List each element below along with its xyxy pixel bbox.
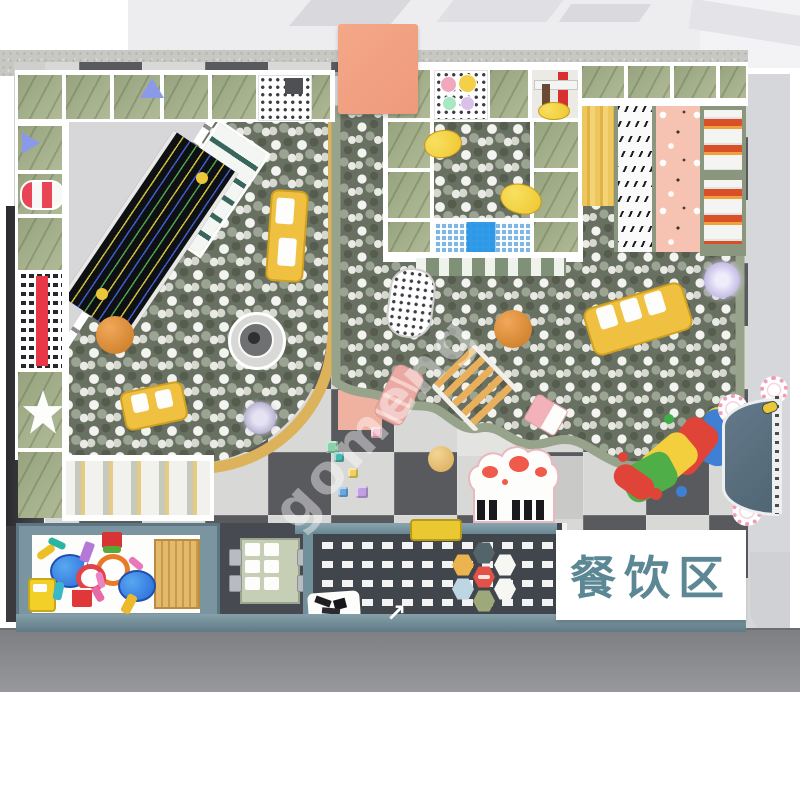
structure-cell xyxy=(720,66,746,98)
ball-orange xyxy=(96,316,134,354)
sand-toy-bus-window xyxy=(33,584,47,592)
right-wall-band xyxy=(748,74,790,634)
lollipop-circle-pink xyxy=(440,76,457,93)
sand-toy-bucket-red2 xyxy=(72,588,92,607)
dining-area-sign-label: 餐饮区 xyxy=(556,530,746,620)
slide-dot xyxy=(196,172,208,184)
caterpillar-ball-red xyxy=(618,452,628,462)
bottom-white-margin xyxy=(0,692,800,800)
structure-cell xyxy=(628,66,670,98)
playground-floorplan-render: 餐饮区 ↗ gomeng xyxy=(0,0,800,800)
caterpillar-ball-blue xyxy=(676,486,687,497)
sand-toy-lid-green xyxy=(103,546,121,553)
toy-train-window xyxy=(277,237,297,266)
left-wall-dark-low xyxy=(6,526,16,622)
structure-cell xyxy=(582,66,624,98)
hex-center-mark xyxy=(478,575,490,579)
semicircle-platform xyxy=(722,398,779,516)
climb-triangle xyxy=(140,78,164,98)
structure-cell xyxy=(534,122,578,168)
roller-slide-segment xyxy=(704,180,742,244)
structure-cell xyxy=(18,218,62,270)
ball-orange xyxy=(494,310,532,348)
pink-slide-lane xyxy=(656,106,700,252)
placemat xyxy=(245,577,260,590)
slide-dot xyxy=(96,288,108,300)
placemat xyxy=(245,560,260,573)
platform-edge-strip xyxy=(772,396,782,514)
top-shadow-wedge xyxy=(559,4,652,22)
bench-yellow xyxy=(410,519,462,541)
structure-cell xyxy=(212,75,256,119)
salmon-block xyxy=(338,24,418,114)
sandbox-wood-platform xyxy=(154,539,200,609)
structure-cell xyxy=(388,172,430,218)
spinner-hub xyxy=(248,332,260,344)
block-cube xyxy=(356,486,368,498)
fence-slats xyxy=(66,461,210,515)
mesh-trampoline xyxy=(434,222,530,252)
caterpillar-ball-red xyxy=(650,488,662,500)
hash-marks xyxy=(618,106,652,252)
perforated-panel-dark-square xyxy=(285,78,303,94)
duck-figure xyxy=(538,102,570,120)
placemat xyxy=(245,543,260,556)
toy-car-window xyxy=(130,393,149,414)
structure-cell xyxy=(18,75,62,119)
wood-slide-lane xyxy=(582,106,614,206)
structure-cell xyxy=(312,75,330,119)
toy-car-window xyxy=(154,389,173,410)
structure-cell xyxy=(388,222,430,252)
structure-cell xyxy=(490,70,528,118)
ball-tan xyxy=(428,446,454,472)
top-shadow-wedge xyxy=(436,0,563,22)
placemat xyxy=(264,560,279,573)
chair xyxy=(229,549,242,566)
punch-pole-cross-bar xyxy=(534,80,578,90)
roller-slide-segment xyxy=(704,110,742,170)
structure-cell xyxy=(534,222,578,252)
red-white-roller xyxy=(20,180,64,210)
lollipop-circle-yellow xyxy=(458,74,477,93)
dining-area-sign: 餐饮区 xyxy=(556,530,746,620)
pom-ball xyxy=(244,402,276,434)
climb-triangle xyxy=(22,132,40,154)
bottom-gray-floor xyxy=(0,630,800,692)
placemat xyxy=(264,543,279,556)
placemat xyxy=(264,577,279,590)
structure-cell xyxy=(534,172,578,218)
structure-cell xyxy=(674,66,716,98)
chair xyxy=(229,575,242,592)
dash-panel-red-stripe xyxy=(36,276,48,366)
right-wall-blob xyxy=(750,552,790,636)
lollipop-circle-mint xyxy=(442,96,457,111)
caterpillar-ball-green xyxy=(664,414,674,424)
arrow-decal: ↗ xyxy=(383,600,409,626)
structure-ledge xyxy=(416,258,566,276)
toy-train-window xyxy=(275,197,295,224)
lollipop-circle-lavender xyxy=(460,96,475,111)
pom-ball-lavender xyxy=(704,262,740,298)
hash-slide-lane xyxy=(618,106,652,252)
structure-cell xyxy=(164,75,208,119)
piano-play-structure xyxy=(460,442,564,526)
structure-cell xyxy=(66,75,110,119)
structure-cell xyxy=(18,452,62,518)
